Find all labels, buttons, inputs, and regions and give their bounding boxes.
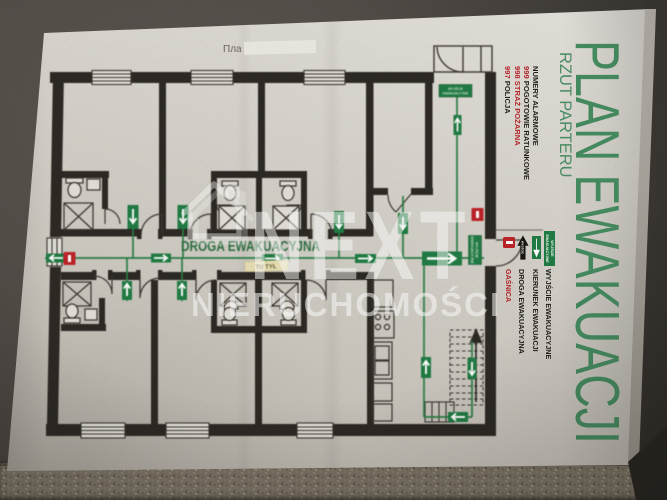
svg-text:EWAKUACYJNE: EWAKUACYJNE: [443, 91, 469, 95]
svg-text:WYJŚCIE: WYJŚCIE: [448, 86, 464, 91]
svg-text:WYJŚCIE: WYJŚCIE: [475, 242, 480, 259]
svg-text:WYJŚCIE: WYJŚCIE: [521, 241, 526, 254]
